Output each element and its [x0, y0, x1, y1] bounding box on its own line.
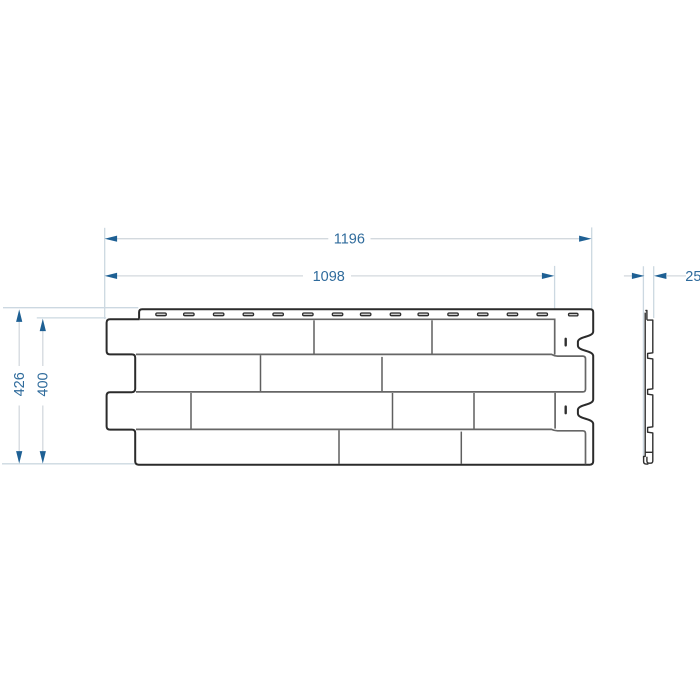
svg-text:400: 400 — [35, 372, 51, 396]
svg-text:1196: 1196 — [334, 232, 365, 248]
svg-text:25: 25 — [685, 269, 700, 285]
svg-text:1098: 1098 — [313, 269, 345, 285]
svg-text:426: 426 — [12, 372, 28, 396]
